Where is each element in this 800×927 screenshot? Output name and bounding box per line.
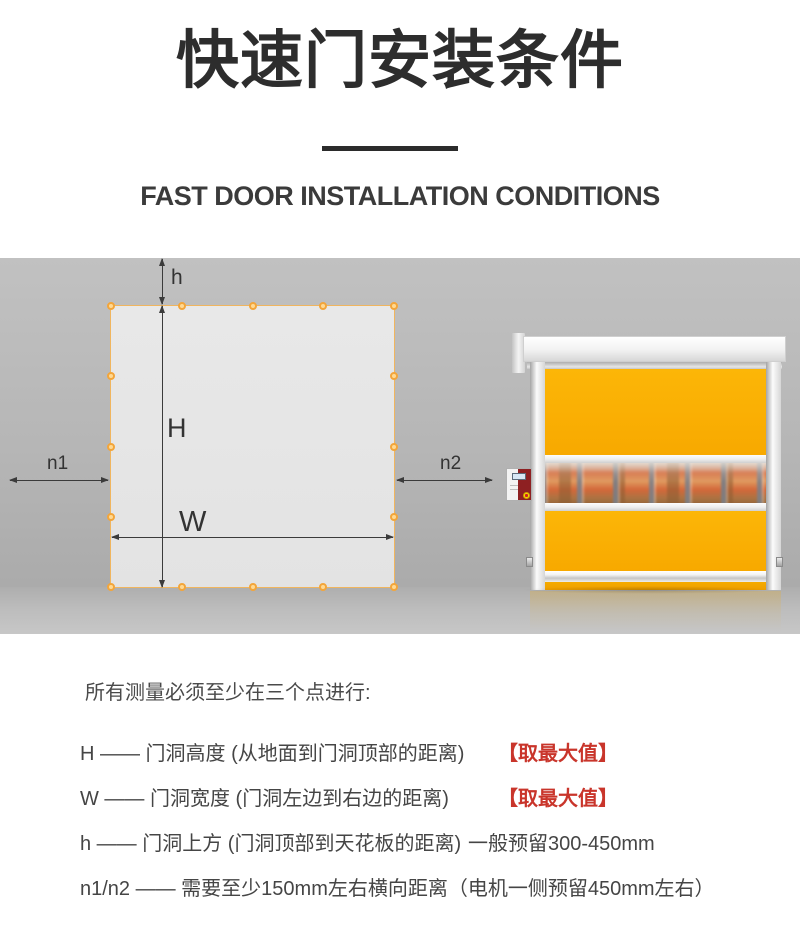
- measure-point-dot: [319, 302, 327, 310]
- measure-point-dot: [249, 583, 257, 591]
- measure-point-dot: [249, 302, 257, 310]
- note-text: n1/n2 —— 需要至少150mm左右横向距离（电机一侧预留450mm左右）: [80, 878, 715, 900]
- measure-point-dot: [107, 372, 115, 380]
- dim-arrow-W: [112, 537, 393, 538]
- measure-point-dot: [390, 443, 398, 451]
- door-separator-bottom: [545, 503, 766, 511]
- page-title: 快速门安装条件: [0, 10, 800, 101]
- control-label-line: [510, 489, 518, 490]
- note-line-H: H —— 门洞高度 (从地面到门洞顶部的距离) 【取最大值】: [80, 737, 800, 765]
- notes-intro: 所有测量必须至少在三个点进行:: [85, 676, 371, 705]
- measure-point-dot: [390, 583, 398, 591]
- note-side-note: 一般预留300-450mm: [468, 827, 655, 856]
- dim-label-h: h: [171, 266, 183, 290]
- dim-arrow-H: [162, 306, 163, 587]
- control-box: [506, 468, 532, 501]
- door-panel-top: [545, 369, 766, 455]
- measure-point-dots: [110, 305, 395, 588]
- page-subtitle: FAST DOOR INSTALLATION CONDITIONS: [0, 181, 800, 212]
- measure-point-dot: [390, 302, 398, 310]
- dim-label-n1: n1: [47, 453, 68, 475]
- dim-arrow-h: [162, 259, 163, 304]
- dim-label-n2: n2: [440, 453, 461, 475]
- rail-bracket-right: [776, 557, 783, 567]
- door-floor-reflection: [530, 591, 781, 631]
- installation-diagram: h H W n1 n2: [0, 258, 800, 634]
- door-curtain: [545, 369, 766, 590]
- note-text: h —— 门洞上方 (门洞顶部到天花板的距离): [80, 833, 461, 855]
- measure-point-dot: [390, 513, 398, 521]
- note-highlight: 【取最大值】: [498, 782, 618, 811]
- dim-label-W: W: [179, 506, 206, 539]
- note-line-h: h —— 门洞上方 (门洞顶部到天花板的距离) 一般预留300-450mm: [80, 827, 800, 855]
- fast-door-illustration: [505, 333, 788, 633]
- door-rail-right: [766, 362, 781, 590]
- note-line-W: W —— 门洞宽度 (门洞左边到右边的距离) 【取最大值】: [80, 782, 800, 810]
- measure-point-dot: [390, 372, 398, 380]
- note-highlight: 【取最大值】: [498, 737, 618, 766]
- measure-point-dot: [107, 443, 115, 451]
- rail-bracket-left: [526, 557, 533, 567]
- control-display: [512, 473, 526, 480]
- dim-arrow-n2: [397, 480, 492, 481]
- page: 快速门安装条件 FAST DOOR INSTALLATION CONDITION…: [0, 0, 800, 927]
- door-bottom-bar: [545, 571, 766, 582]
- door-housing-trim: [527, 362, 782, 369]
- measure-point-dot: [107, 302, 115, 310]
- door-roller-housing: [523, 336, 786, 362]
- note-line-n1n2: n1/n2 —— 需要至少150mm左右横向距离（电机一侧预留450mm左右）: [80, 872, 800, 900]
- door-panel-bottom: [545, 511, 766, 571]
- warehouse-view: [545, 463, 766, 503]
- dim-arrow-n1: [10, 480, 108, 481]
- measure-point-dot: [107, 583, 115, 591]
- note-text: W —— 门洞宽度 (门洞左边到右边的距离): [80, 788, 449, 810]
- door-rail-left: [530, 362, 545, 590]
- emergency-stop-button: [523, 492, 530, 499]
- vision-window: [545, 463, 766, 503]
- title-divider: [322, 146, 458, 151]
- measure-point-dot: [178, 583, 186, 591]
- door-separator-top: [545, 455, 766, 463]
- measure-point-dot: [107, 513, 115, 521]
- control-label-line: [510, 485, 518, 486]
- note-text: H —— 门洞高度 (从地面到门洞顶部的距离): [80, 743, 464, 765]
- measure-point-dot: [319, 583, 327, 591]
- measure-point-dot: [178, 302, 186, 310]
- dim-label-H: H: [167, 413, 187, 444]
